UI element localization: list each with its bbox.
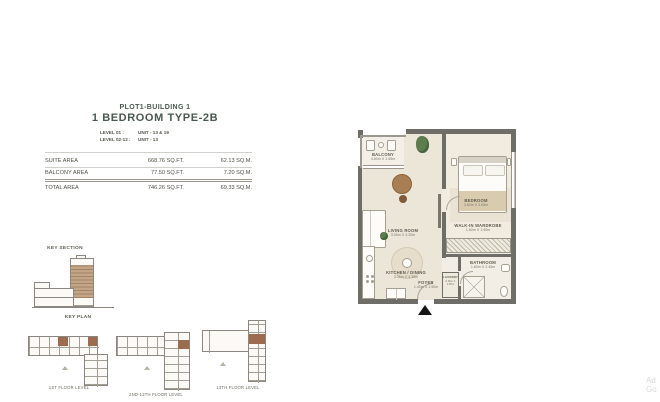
suite-area-sqm: 62.13 SQ.M. <box>221 158 252 164</box>
strip-midline <box>29 347 99 348</box>
wall-bottom-left <box>358 299 418 304</box>
entrance-arrow-icon <box>418 305 432 315</box>
living-room-label: LIVING ROOM 3.05m X 3.20m <box>382 228 424 238</box>
balcony-label: BALCONY 4.60m X 1.55m <box>366 152 400 162</box>
stove-burner-icon <box>371 280 374 283</box>
highlighted-unit-cell <box>58 337 68 346</box>
side-table-icon <box>399 195 407 203</box>
nightstand-icon <box>451 158 457 166</box>
nightstand-icon <box>507 158 511 166</box>
brochure-page: PLOT1-BUILDING 1 1 BEDROOM TYPE-2B LEVEL… <box>0 0 660 402</box>
room-dims: 1.60m X 1.90m <box>448 228 508 233</box>
floorplate-rect <box>202 330 250 352</box>
north-arrow-icon <box>62 366 68 370</box>
key-section-title: KEY SECTION <box>35 246 95 251</box>
tv-unit-icon <box>438 194 441 228</box>
room-dims: 1.40m X 1.50m <box>410 285 442 290</box>
balcony-chair-icon <box>387 140 396 151</box>
key-section-drawing <box>32 256 114 310</box>
window-mullion <box>514 152 515 208</box>
watermark-line-1: Ad <box>646 376 660 385</box>
level-1-units: UNIT - 13 & 19 <box>138 130 169 135</box>
suite-area-sqft: 668.76 SQ.FT. <box>148 158 184 164</box>
plant-icon <box>416 136 429 153</box>
highlighted-unit-cell <box>249 334 265 344</box>
strip-midline-v <box>258 321 259 383</box>
unit-type-title: 1 BEDROOM TYPE-2B <box>75 112 235 124</box>
highlighted-unit-cell <box>178 340 189 349</box>
bedroom-label: BEDROOM 3.60m X 3.05m <box>454 198 498 208</box>
toilet-icon <box>500 286 508 297</box>
wardrobe-label: WALK-IN WARDROBE 1.60m X 1.90m <box>448 223 508 233</box>
kitchen-sink-icon <box>366 255 373 262</box>
floor-3-caption: 13TH FLOOR LEVEL <box>192 385 284 390</box>
floor-plan: BALCONY 4.60m X 1.55m BEDROOM 3.60m X 3.… <box>358 116 520 318</box>
area-row-balcony: BALCONY AREA 77.50 SQ.FT. 7.20 SQ.M. <box>45 170 252 178</box>
area-row-suite: SUITE AREA 668.76 SQ.FT. 62.13 SQ.M. <box>45 158 252 166</box>
table-line-mid <box>45 167 252 168</box>
balcony-rail-left <box>360 135 362 168</box>
page-title: PLOT1-BUILDING 1 <box>75 104 235 111</box>
floor-1-caption: 1ST FLOOR LEVEL <box>28 385 110 390</box>
level-1-label: LEVEL 01 : <box>100 130 124 135</box>
key-plan-title: KEY PLAN <box>48 315 108 320</box>
highlighted-unit-cell <box>88 337 97 346</box>
floorplate-strip-v <box>248 320 266 382</box>
pillow-icon <box>463 165 483 176</box>
podium-step <box>34 282 50 289</box>
pillow-icon <box>485 165 505 176</box>
rect-divider <box>209 331 210 353</box>
stove-burner-icon <box>366 280 369 283</box>
key-plan-floor-1: 1ST FLOOR LEVEL <box>28 332 110 392</box>
sofa-cushion-line <box>370 211 371 249</box>
balcony-rail-top <box>360 135 406 137</box>
north-arrow-icon <box>144 366 150 370</box>
room-dims: 0.90m X 1.55m <box>442 280 459 287</box>
kitchen-cabinet-icon <box>386 288 406 299</box>
strip-midline-v <box>97 355 98 387</box>
suite-area-label: SUITE AREA <box>45 158 78 164</box>
key-plan-floor-3: 13TH FLOOR LEVEL <box>202 320 266 390</box>
room-dims: 1.60m X 2.45m <box>462 265 504 270</box>
balcony-area-sqft: 77.50 SQ.FT. <box>151 170 184 176</box>
balcony-chair-icon <box>366 140 375 151</box>
tower-roof <box>76 255 86 259</box>
balcony-table-icon <box>378 142 384 148</box>
laundry-label: LAUNDRY 0.90m X 1.55m <box>442 276 459 286</box>
room-dims: 3.60m X 3.05m <box>454 203 498 208</box>
north-arrow-icon <box>220 362 226 366</box>
cabinet-divider <box>396 289 397 300</box>
wall-bedroom-divider-upper <box>442 129 446 189</box>
coffee-table-icon <box>402 258 412 268</box>
kitchen-counter-icon <box>362 246 375 299</box>
floorplate-strip-v <box>84 354 108 386</box>
wall-bottom-right <box>434 299 516 304</box>
total-area-sqm: 69.33 SQ.M. <box>221 185 252 191</box>
wall-bathroom-left-upper <box>458 257 461 271</box>
key-plan-floor-2: 2ND-12TH FLOOR LEVEL <box>116 332 196 396</box>
wardrobe-icon <box>446 238 511 253</box>
table-line-strong-1 <box>45 179 252 180</box>
foyer-label: FOYER 1.40m X 1.50m <box>410 280 442 290</box>
tower-highlighted-floors <box>71 265 93 298</box>
ground-line <box>32 307 114 308</box>
table-line-strong-2 <box>45 181 252 182</box>
wall-bathroom-top <box>446 254 512 257</box>
balcony-area-sqm: 7.20 SQ.M. <box>224 170 252 176</box>
bedroom-window <box>511 152 516 208</box>
watermark: Ad Go <box>646 376 660 394</box>
podium-line <box>34 297 74 298</box>
room-dims: 4.60m X 1.55m <box>366 157 400 162</box>
bathroom-label: BATHROOM 1.60m X 2.45m <box>462 260 504 270</box>
total-area-sqft: 746.26 SQ.FT. <box>148 185 184 191</box>
kitchen-dining-label: KITCHEN / DINING 3.35m X 4.35m <box>384 270 428 280</box>
table-line-top <box>45 152 252 153</box>
balcony-area-label: BALCONY AREA <box>45 170 88 176</box>
level-2-label: LEVEL 02-12 : <box>100 137 131 142</box>
dining-table-icon <box>392 174 412 194</box>
area-row-total: TOTAL AREA 746.26 SQ.FT. 69.33 SQ.M. <box>45 185 252 193</box>
wall-top <box>406 129 516 134</box>
stove-burner-icon <box>366 275 369 278</box>
stove-burner-icon <box>371 275 374 278</box>
bed-headboard <box>459 157 506 163</box>
floor-2-caption: 2ND-12TH FLOOR LEVEL <box>110 392 202 397</box>
balcony-window <box>363 165 404 169</box>
room-dims: 3.05m X 3.20m <box>382 233 424 238</box>
area-table: SUITE AREA 668.76 SQ.FT. 62.13 SQ.M. BAL… <box>45 152 252 196</box>
watermark-line-2: Go <box>646 385 660 394</box>
total-area-label: TOTAL AREA <box>45 185 79 191</box>
level-2-units: UNIT - 13 <box>138 137 158 142</box>
